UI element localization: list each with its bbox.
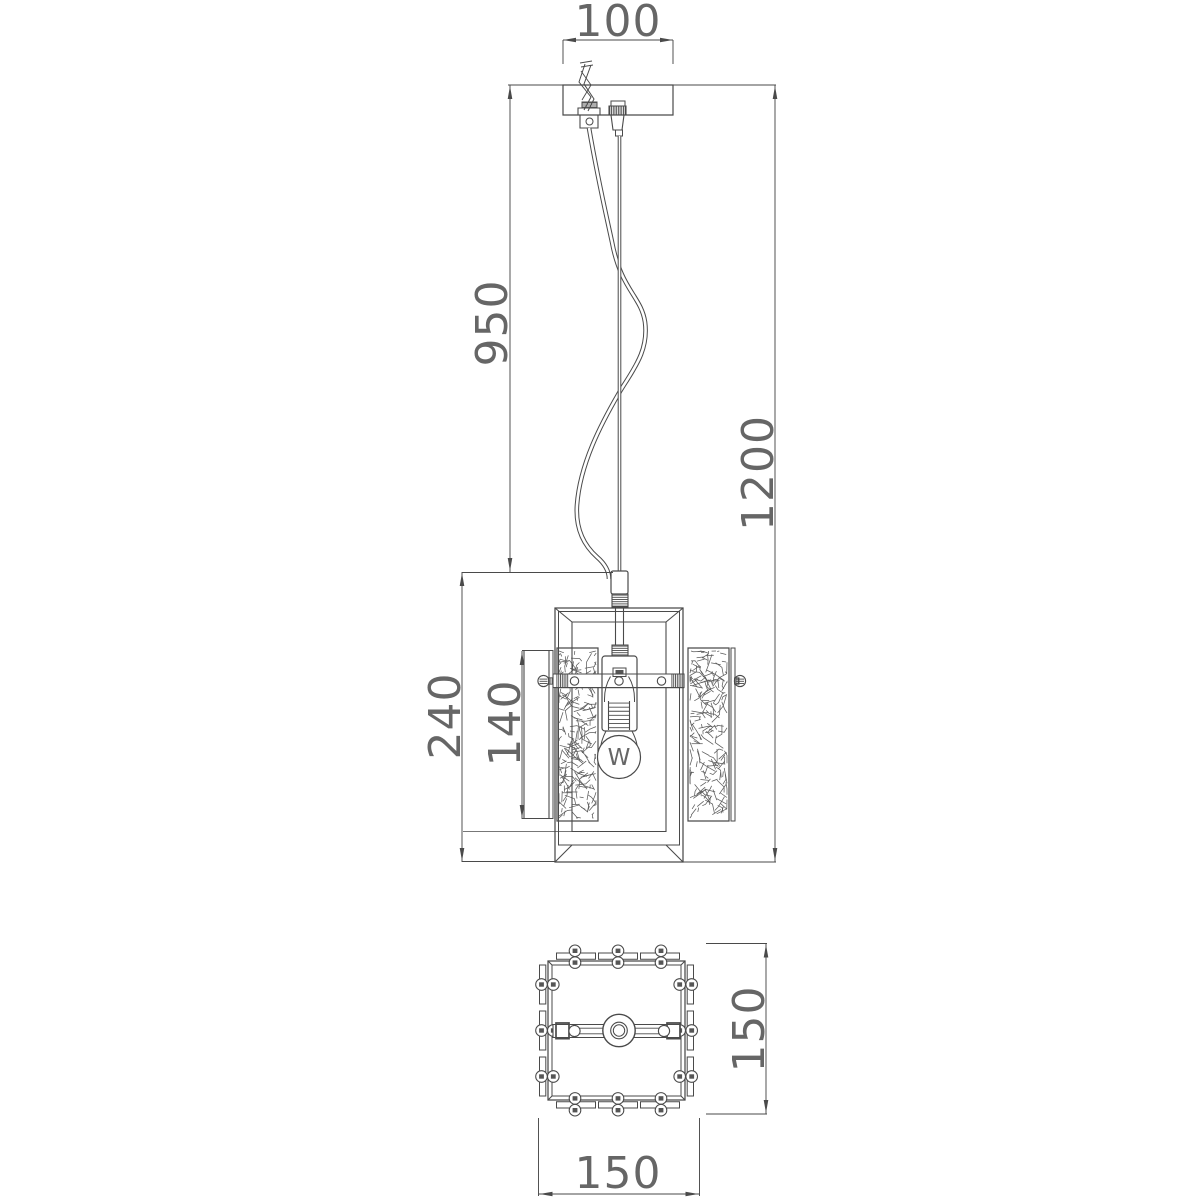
cord-strain-relief [609, 101, 626, 136]
dim-plan-height: 150 [724, 986, 775, 1073]
dim-suspension-height: 950 [467, 280, 518, 367]
plan-view [536, 945, 698, 1116]
dim-body-height: 240 [420, 673, 471, 760]
cable-gripper [578, 61, 600, 128]
pendant-lamp-drawing: 100 950 1200 240 140 150 150 W [0, 0, 1200, 1200]
dim-canopy-width: 100 [575, 0, 662, 47]
suspension-cable [577, 128, 646, 579]
bulb-wattage-symbol: W [608, 745, 631, 771]
dim-plan-width: 150 [575, 1148, 662, 1199]
drawing-sheet: 100 950 1200 240 140 150 150 W [0, 0, 1200, 1200]
dim-panel-height: 140 [480, 680, 531, 767]
dim-total-height: 1200 [733, 415, 784, 531]
